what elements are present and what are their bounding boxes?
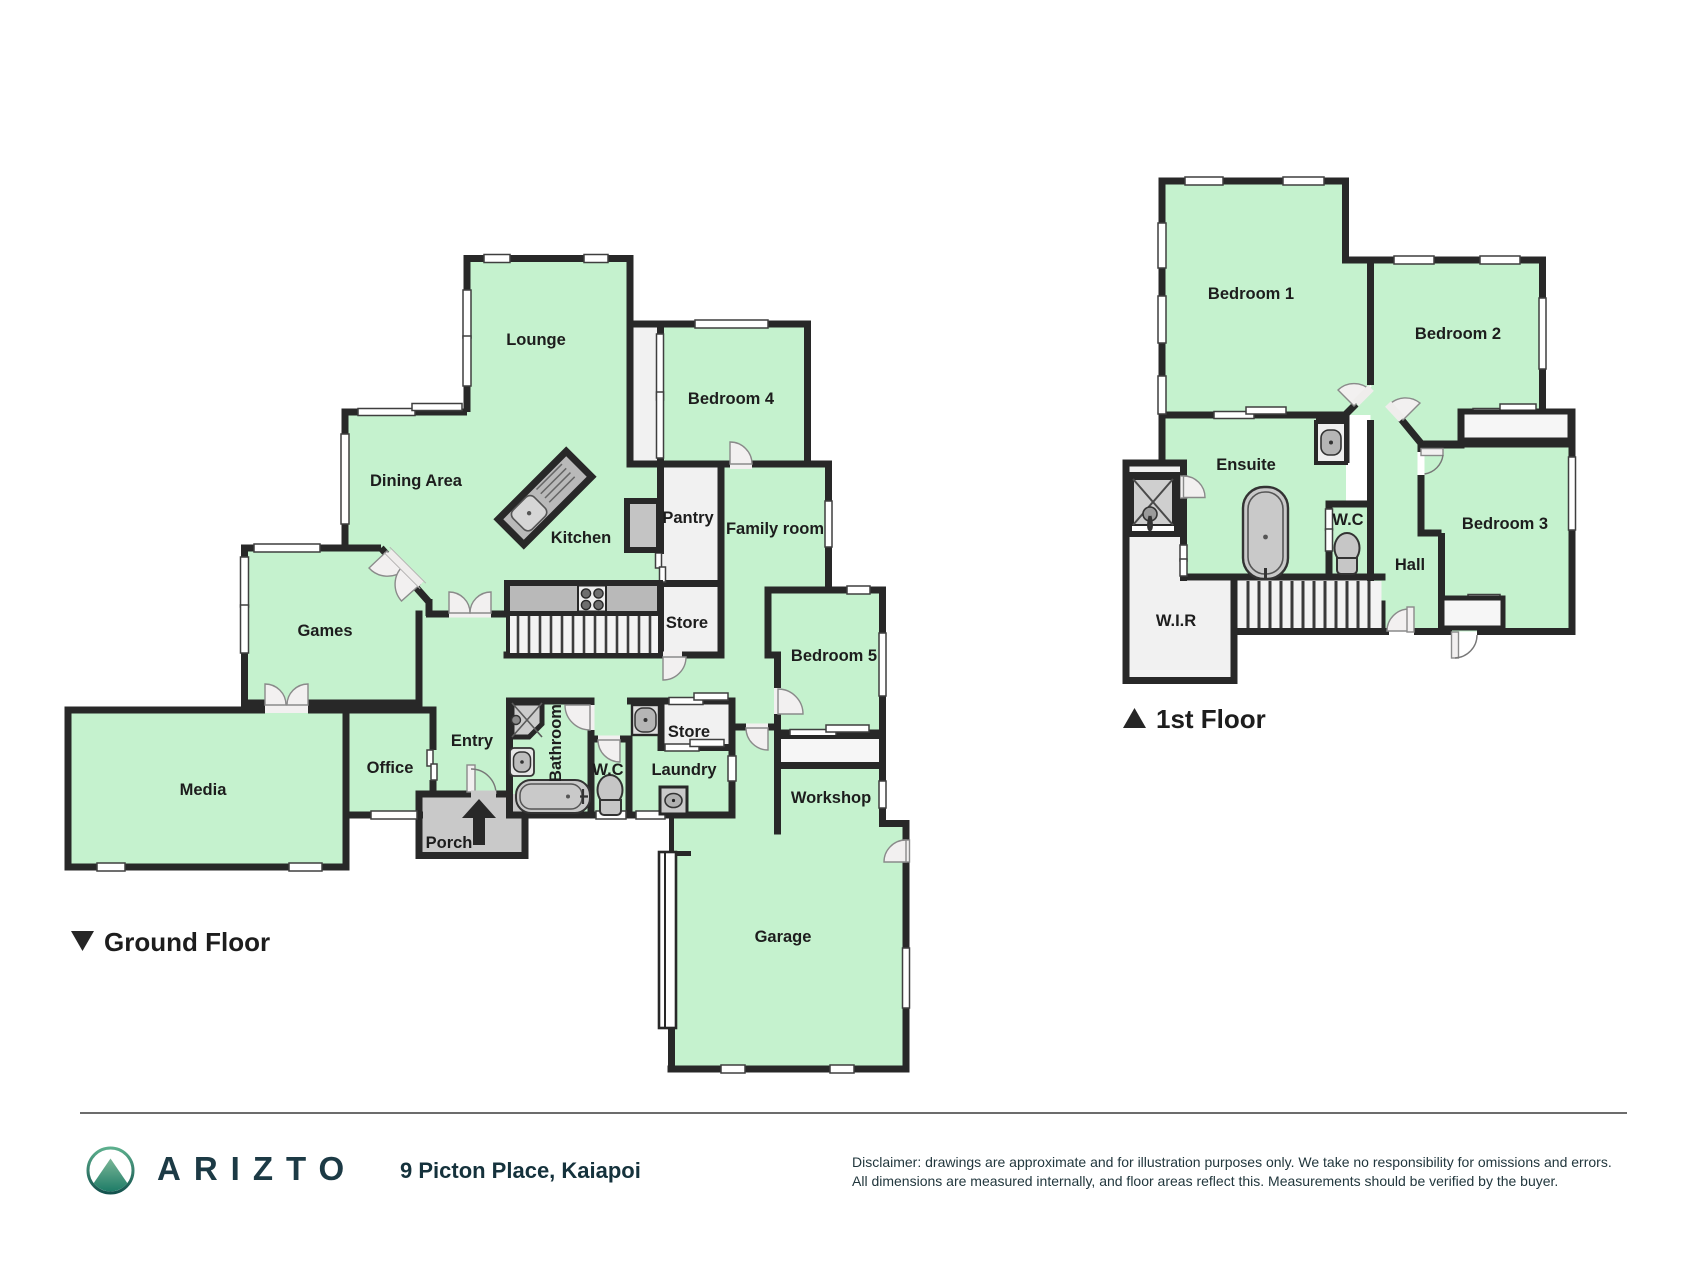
svg-text:Bathroom: Bathroom [547, 704, 565, 782]
svg-text:ARIZTO: ARIZTO [157, 1150, 357, 1187]
svg-text:W.I.R: W.I.R [1156, 612, 1196, 630]
svg-text:9 Picton Place, Kaiapoi: 9 Picton Place, Kaiapoi [400, 1158, 641, 1183]
svg-text:Bedroom 4: Bedroom 4 [688, 390, 775, 408]
svg-text:Store: Store [668, 723, 710, 741]
svg-text:Pantry: Pantry [662, 509, 714, 527]
svg-text:Hall: Hall [1395, 556, 1425, 574]
svg-text:Office: Office [367, 759, 414, 777]
svg-text:Bedroom 5: Bedroom 5 [791, 647, 877, 665]
svg-text:Bedroom 3: Bedroom 3 [1462, 515, 1548, 533]
svg-text:W.C: W.C [1332, 511, 1363, 529]
svg-text:Kitchen: Kitchen [551, 529, 612, 547]
svg-text:1st Floor: 1st Floor [1156, 704, 1266, 734]
svg-text:Bedroom 1: Bedroom 1 [1208, 285, 1294, 303]
svg-text:Bedroom 2: Bedroom 2 [1415, 325, 1501, 343]
svg-text:Laundry: Laundry [651, 761, 717, 779]
svg-text:Garage: Garage [755, 928, 812, 946]
svg-text:Disclaimer: drawings are appro: Disclaimer: drawings are approximate and… [852, 1154, 1612, 1170]
svg-text:All dimensions are measured in: All dimensions are measured internally, … [852, 1173, 1558, 1189]
svg-text:Media: Media [180, 781, 228, 799]
svg-text:Ensuite: Ensuite [1216, 456, 1276, 474]
svg-text:W.C: W.C [592, 761, 623, 779]
svg-text:Workshop: Workshop [791, 789, 871, 807]
svg-text:Lounge: Lounge [506, 331, 566, 349]
svg-text:Store: Store [666, 614, 708, 632]
svg-text:Ground Floor: Ground Floor [104, 927, 270, 957]
svg-text:Entry: Entry [451, 732, 494, 750]
svg-text:Dining Area: Dining Area [370, 472, 463, 490]
svg-text:Porch: Porch [426, 834, 473, 852]
svg-text:Games: Games [297, 622, 352, 640]
svg-text:Family room: Family room [726, 520, 824, 538]
